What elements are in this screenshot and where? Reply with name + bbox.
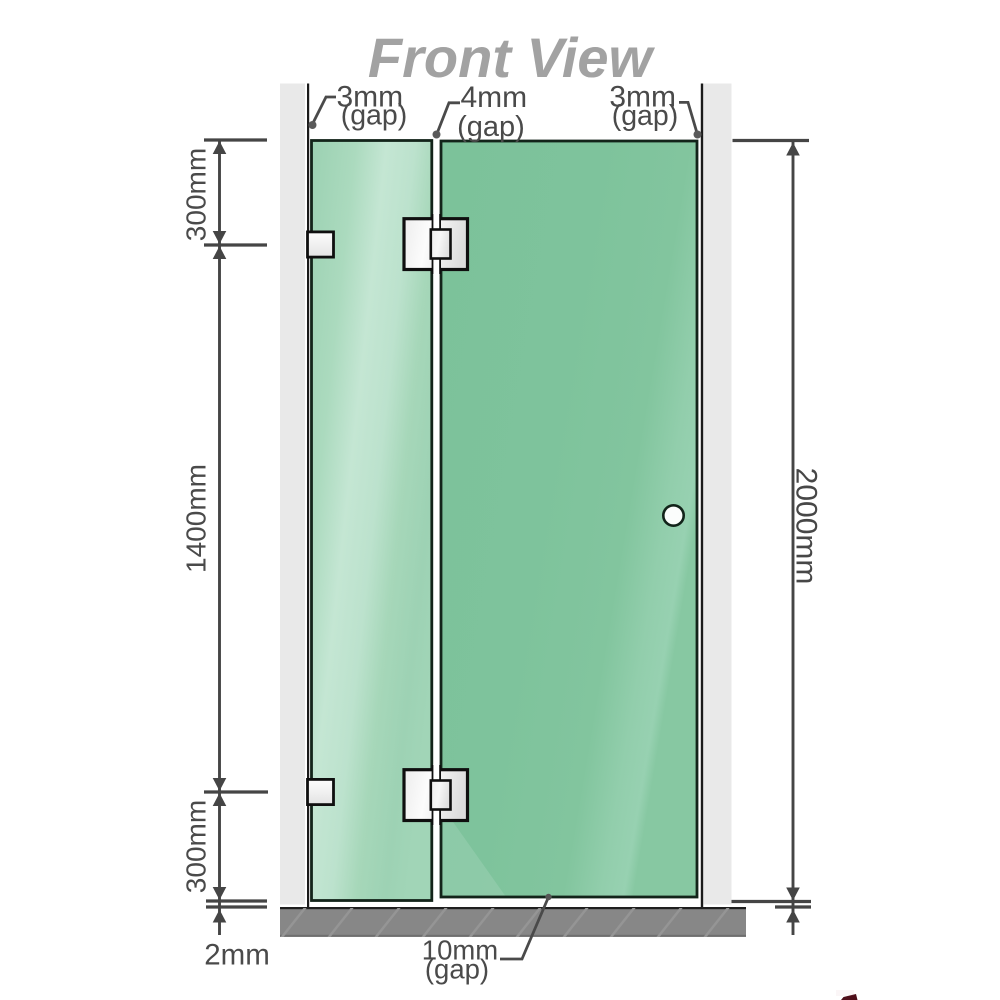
svg-text:2000mm: 2000mm: [790, 468, 823, 585]
svg-text:300mm: 300mm: [181, 148, 212, 241]
svg-text:2mm: 2mm: [204, 939, 270, 972]
svg-text:(gap): (gap): [612, 100, 679, 132]
svg-text:(gap): (gap): [457, 111, 525, 143]
svg-text:(gap): (gap): [341, 100, 408, 132]
svg-text:4mm: 4mm: [461, 81, 528, 114]
svg-text:(gap): (gap): [425, 954, 489, 985]
svg-text:1400mm: 1400mm: [181, 464, 212, 573]
svg-text:300mm: 300mm: [181, 800, 212, 893]
